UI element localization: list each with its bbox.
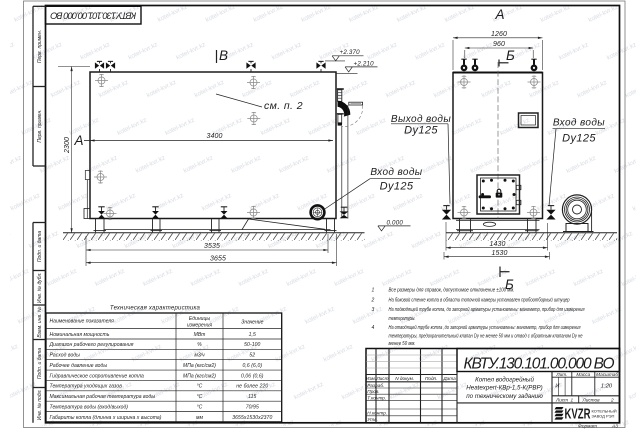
svg-text:КВТУ.130.101.00.000 ВО: КВТУ.130.101.00.000 ВО bbox=[50, 11, 136, 21]
svg-text:Dy125: Dy125 bbox=[562, 133, 596, 145]
svg-text:Вход воды: Вход воды bbox=[370, 167, 422, 178]
svg-text:3: 3 bbox=[372, 307, 375, 313]
svg-text:1: 1 bbox=[372, 287, 375, 293]
svg-text:3400: 3400 bbox=[207, 133, 223, 140]
svg-text:Номинальная мощность: Номинальная мощность bbox=[50, 332, 110, 338]
svg-text:52: 52 bbox=[249, 353, 255, 359]
svg-text:KVZR: KVZR bbox=[565, 407, 591, 423]
svg-text:%: % bbox=[197, 342, 202, 348]
svg-text:На подводящей трубе котла, до: На подводящей трубе котла, до запорной а… bbox=[389, 306, 585, 313]
svg-text:Единицы: Единицы bbox=[189, 316, 210, 322]
svg-text:2: 2 bbox=[371, 298, 375, 304]
svg-text:Рабочее давление воды: Рабочее давление воды bbox=[50, 363, 108, 369]
svg-text:КОТЕЛЬНЫЙ: КОТЕЛЬНЫЙ bbox=[592, 408, 617, 413]
svg-text:115: 115 bbox=[248, 394, 256, 400]
svg-text:Н.контр.: Н.контр. bbox=[367, 411, 387, 416]
svg-text:Максимальная рабочая температу: Максимальная рабочая температура воды bbox=[50, 394, 156, 400]
svg-text:Перв. примен.: Перв. примен. bbox=[37, 30, 43, 63]
svg-text:Наименование показателя: Наименование показателя bbox=[50, 319, 115, 325]
svg-text:2300: 2300 bbox=[64, 137, 71, 154]
svg-text:Подп. и дата: Подп. и дата bbox=[37, 348, 43, 380]
svg-text:Техническая характеристика: Техническая характеристика bbox=[110, 305, 201, 311]
svg-text:1:20: 1:20 bbox=[601, 384, 613, 390]
svg-text:°С: °С bbox=[197, 404, 203, 410]
svg-text:1260: 1260 bbox=[491, 31, 507, 38]
svg-text:Масса: Масса bbox=[576, 372, 590, 377]
svg-text:Листов: Листов bbox=[582, 398, 601, 403]
svg-text:°С: °С bbox=[197, 394, 203, 400]
svg-text:Гидравлическое сопротивление к: Гидравлическое сопротивление котла bbox=[50, 373, 145, 379]
svg-text:1430: 1430 bbox=[490, 241, 506, 248]
svg-text:МПа (кгс/см2): МПа (кгс/см2) bbox=[183, 373, 216, 379]
svg-text:А: А bbox=[494, 7, 504, 22]
svg-text:1: 1 bbox=[571, 398, 574, 403]
svg-text:Dy125: Dy125 bbox=[404, 125, 438, 137]
svg-text:Утв.: Утв. bbox=[367, 417, 378, 422]
svg-text:Вход воды: Вход воды bbox=[553, 118, 605, 129]
svg-text:Формат: Формат bbox=[578, 423, 597, 429]
svg-text:МВт: МВт bbox=[194, 332, 206, 338]
svg-text:Б: Б bbox=[506, 48, 515, 63]
svg-text:по техническому заданию: по техническому заданию bbox=[466, 393, 543, 400]
svg-text:Лист: Лист bbox=[555, 398, 568, 403]
svg-text:В: В bbox=[219, 48, 228, 63]
svg-text:0,6 (6,0): 0,6 (6,0) bbox=[242, 363, 262, 369]
svg-text:Пров.: Пров. bbox=[367, 389, 379, 394]
svg-text:менее 50 мм.: менее 50 мм. bbox=[389, 341, 416, 347]
svg-text:Масштаб: Масштаб bbox=[596, 372, 618, 377]
svg-text:0,06 (0,6): 0,06 (0,6) bbox=[241, 373, 264, 379]
svg-text:Инв. № дубл.: Инв. № дубл. bbox=[37, 272, 43, 303]
svg-text:см. п. 2: см. п. 2 bbox=[264, 100, 303, 112]
svg-text:+2.210: +2.210 bbox=[354, 60, 375, 67]
svg-text:КВТУ.130.101.00.000 ВО: КВТУ.130.101.00.000 ВО bbox=[464, 355, 615, 372]
svg-text:Котел водогрейный: Котел водогрейный bbox=[475, 376, 534, 383]
svg-text:50-100: 50-100 bbox=[244, 342, 260, 348]
svg-text:Дата: Дата bbox=[442, 376, 456, 381]
svg-text:Взам. инв. №: Взам. инв. № bbox=[37, 306, 43, 338]
svg-text:N докум.: N докум. bbox=[395, 376, 414, 381]
svg-text:температуры.: температуры. bbox=[389, 316, 416, 322]
svg-text:не более 220: не более 220 bbox=[236, 384, 268, 390]
svg-text:Расход воды: Расход воды bbox=[50, 353, 81, 359]
svg-text:Heatexpert-КВр-1,5-К(РВР): Heatexpert-КВр-1,5-К(РВР) bbox=[466, 385, 542, 392]
svg-text:Dy125: Dy125 bbox=[380, 181, 414, 193]
svg-text:Разраб.: Разраб. bbox=[367, 383, 384, 388]
svg-text:3655: 3655 bbox=[210, 256, 226, 263]
svg-text:Подп. и дата: Подп. и дата bbox=[37, 231, 43, 263]
svg-text:Температура воды (вход/выход): Температура воды (вход/выход) bbox=[50, 404, 129, 410]
svg-text:+2.370: +2.370 bbox=[340, 49, 361, 56]
svg-text:измерения: измерения bbox=[187, 322, 213, 328]
svg-text:Лист: Лист bbox=[375, 376, 388, 381]
svg-text:0.000: 0.000 bbox=[387, 219, 404, 226]
svg-text:МПа (кгс/см2): МПа (кгс/см2) bbox=[183, 363, 216, 369]
svg-text:Габариты котла (длинна х ширин: Габариты котла (длинна х ширина х высота… bbox=[50, 415, 162, 421]
svg-text:Диапазон рабочего регулировани: Диапазон рабочего регулирования bbox=[49, 342, 134, 348]
svg-text:70/95: 70/95 bbox=[246, 404, 259, 410]
svg-text:2: 2 bbox=[610, 398, 614, 403]
svg-text:Температура уходящих газов: Температура уходящих газов bbox=[50, 384, 123, 390]
svg-text:А: А bbox=[73, 133, 83, 148]
svg-text:3535: 3535 bbox=[204, 243, 220, 250]
svg-text:Подп.: Подп. bbox=[425, 376, 437, 381]
svg-text:Выход воды: Выход воды bbox=[391, 114, 451, 125]
svg-text:Изм.: Изм. bbox=[366, 376, 376, 381]
svg-text:мм: мм bbox=[196, 415, 203, 421]
svg-text:температуры, предохранительный: температуры, предохранительный клапан Dу… bbox=[389, 333, 583, 340]
svg-text:м3/ч: м3/ч bbox=[194, 353, 205, 359]
svg-text:3655х1530х2370: 3655х1530х2370 bbox=[232, 415, 272, 421]
svg-text:Инв. № подл.: Инв. № подл. bbox=[37, 389, 43, 420]
svg-text:Перв. примен.: Перв. примен. bbox=[37, 109, 43, 142]
svg-text:1,5: 1,5 bbox=[249, 332, 256, 338]
svg-text:ЗАВОД РЭП: ЗАВОД РЭП bbox=[592, 414, 615, 419]
svg-text:Т.контр.: Т.контр. bbox=[367, 395, 386, 400]
svg-text:1530: 1530 bbox=[492, 250, 508, 257]
svg-text:На боковой стенке котла в обла: На боковой стенке котла в области топочн… bbox=[389, 297, 570, 304]
svg-text:°С: °С bbox=[197, 384, 203, 390]
svg-text:Все размеры для справок, допус: Все размеры для справок, допустимое откл… bbox=[389, 287, 515, 293]
svg-text:На отводящей трубе котла ,до з: На отводящей трубе котла ,до запорной ар… bbox=[389, 324, 581, 331]
svg-text:960: 960 bbox=[493, 41, 505, 48]
svg-text:4: 4 bbox=[372, 325, 375, 331]
svg-text:А3: А3 bbox=[611, 423, 618, 429]
svg-text:Лит.: Лит. bbox=[555, 372, 567, 377]
svg-text:Значение: Значение bbox=[241, 319, 263, 325]
